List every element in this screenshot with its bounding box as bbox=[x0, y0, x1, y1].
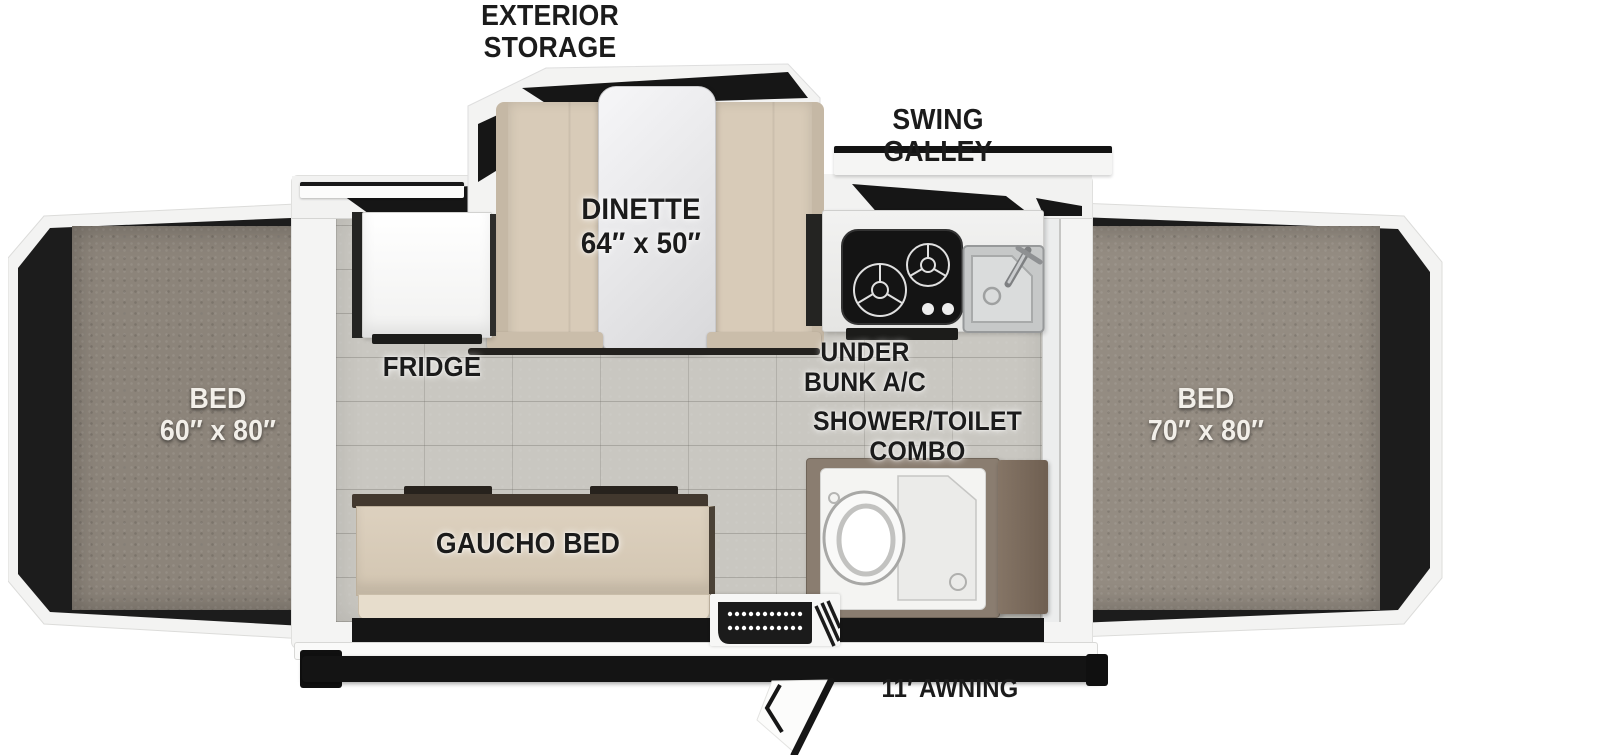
galley-gap bbox=[806, 214, 822, 326]
roof-ledge bbox=[300, 182, 464, 198]
stove-cooktop bbox=[840, 228, 966, 328]
label-swing-galley: SWING GALLEY bbox=[837, 104, 1039, 169]
entry-step-mat bbox=[714, 600, 840, 650]
fridge-base bbox=[372, 334, 482, 344]
label-bed-right: BED 70″ x 80″ bbox=[1114, 383, 1298, 448]
label-gaucho-bed: GAUCHO BED bbox=[418, 528, 639, 560]
galley-sink bbox=[962, 240, 1046, 336]
shower-toilet-detail bbox=[820, 468, 984, 608]
label-awning: 11′ AWNING bbox=[867, 674, 1033, 703]
label-exterior-storage: EXTERIOR STORAGE bbox=[449, 0, 651, 65]
label-dinette: DINETTE 64″ x 50″ bbox=[539, 193, 743, 260]
gaucho-bed-seat bbox=[358, 594, 710, 620]
fridge-side-gap bbox=[490, 214, 496, 336]
label-under-bunk-ac: UNDER BUNK A/C bbox=[782, 337, 948, 397]
label-bed-left: BED 60″ x 80″ bbox=[126, 383, 310, 448]
floorplan-canvas: EXTERIOR STORAGE SWING GALLEY DINETTE 64… bbox=[0, 0, 1600, 755]
dinette-base-shadow bbox=[468, 348, 820, 355]
label-shower-toilet-combo: SHOWER/TOILET COMBO bbox=[805, 406, 1030, 466]
bathroom-cabinet bbox=[998, 460, 1048, 614]
entry-door bbox=[750, 678, 844, 755]
awning-bar-endcap bbox=[1086, 654, 1108, 686]
label-fridge: FRIDGE bbox=[358, 351, 505, 382]
fridge bbox=[362, 212, 492, 338]
